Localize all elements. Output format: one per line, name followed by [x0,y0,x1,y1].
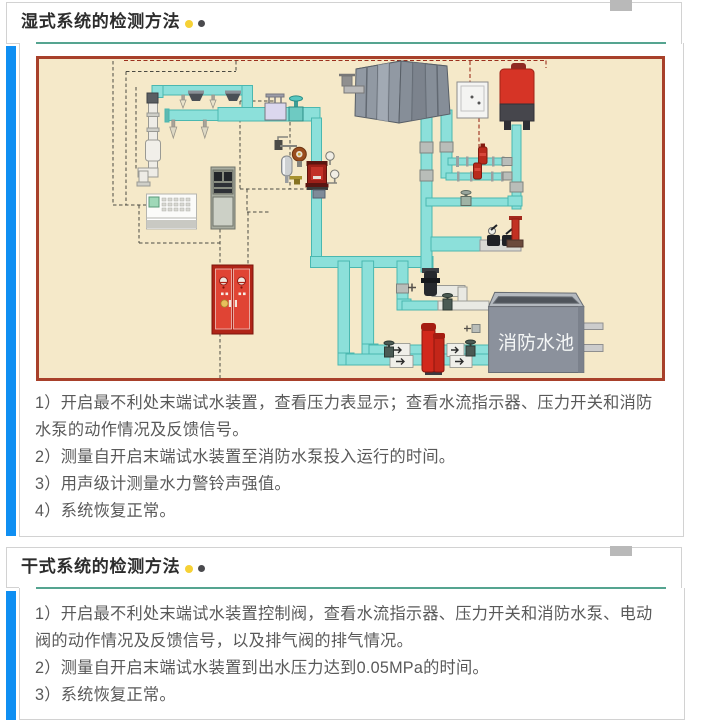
svg-text:消防水池: 消防水池 [498,332,574,354]
